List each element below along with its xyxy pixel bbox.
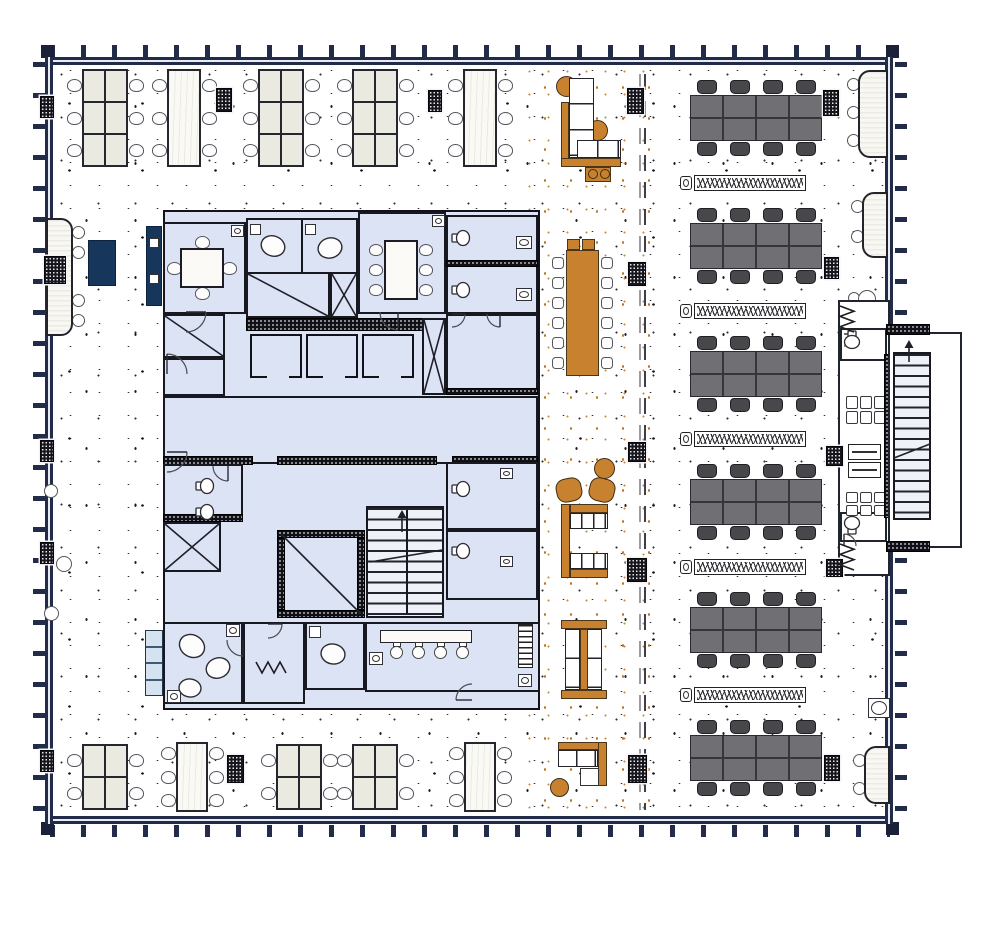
sofa-back <box>561 102 569 166</box>
booth-seats <box>846 492 886 516</box>
elevator-door <box>267 375 289 382</box>
task-chair <box>448 79 463 92</box>
task-chair <box>243 79 258 92</box>
bench-chair <box>730 526 750 540</box>
elevator-wall <box>246 318 434 331</box>
bench-desk-row <box>690 479 822 525</box>
dining-chair <box>552 277 564 289</box>
sink <box>369 652 383 665</box>
bench-chair <box>763 80 783 94</box>
window-bar-counter <box>858 70 888 158</box>
column <box>826 559 843 577</box>
bench-chair <box>697 720 717 734</box>
bench-chair <box>730 654 750 668</box>
task-chair <box>261 787 276 800</box>
task-chair <box>399 79 414 92</box>
utility-wall <box>446 388 538 395</box>
desk-cluster-4 <box>82 744 128 810</box>
task-chair <box>337 79 352 92</box>
dining-chair <box>552 257 564 269</box>
exterior-stair <box>893 352 931 520</box>
bench-chair <box>796 208 816 222</box>
sofa-back <box>561 158 621 167</box>
sink <box>500 468 513 479</box>
long-table <box>463 69 497 167</box>
column <box>628 755 647 783</box>
desk-cluster-4 <box>352 744 398 810</box>
side-table <box>432 215 445 227</box>
exterior-wall-bottom <box>45 816 893 824</box>
elevator-lobby <box>163 396 538 464</box>
stool <box>72 314 85 327</box>
planter-credenza <box>694 559 806 575</box>
side-table <box>167 690 181 703</box>
column <box>40 96 54 118</box>
long-table <box>176 742 208 812</box>
column <box>824 257 839 279</box>
bar-stool <box>456 646 469 659</box>
stool <box>567 239 580 250</box>
column <box>40 750 54 772</box>
meeting-table <box>384 240 418 300</box>
shaft <box>330 272 358 318</box>
pouf <box>44 484 58 498</box>
task-chair <box>337 112 352 125</box>
side-table <box>226 624 240 637</box>
dining-chair <box>601 257 613 269</box>
planter-credenza <box>694 431 806 447</box>
dining-chair <box>601 337 613 349</box>
chair <box>195 287 210 300</box>
bench-chair <box>697 270 717 284</box>
dining-chair <box>601 297 613 309</box>
task-chair <box>449 771 464 784</box>
mech-wall <box>357 538 365 610</box>
bench-chair <box>796 782 816 796</box>
column <box>823 90 839 116</box>
mech-wall <box>277 530 365 538</box>
side-table <box>305 224 316 235</box>
bench-chair <box>730 208 750 222</box>
long-table <box>464 742 496 812</box>
bench-chair <box>796 526 816 540</box>
bar-stool <box>434 646 447 659</box>
bench-chair <box>763 720 783 734</box>
cafe-long-table <box>566 250 599 376</box>
bench-chair <box>796 720 816 734</box>
restroom-divider <box>446 260 538 267</box>
sofa-back <box>561 504 570 578</box>
bench-chair <box>796 592 816 606</box>
appliance <box>848 462 881 478</box>
bench-desk-row <box>690 607 822 653</box>
task-chair <box>449 794 464 807</box>
bar-stool <box>390 646 403 659</box>
bench-chair <box>796 654 816 668</box>
desk-cluster-4 <box>276 744 322 810</box>
vanity-sink <box>516 288 532 301</box>
bench-chair <box>763 592 783 606</box>
dining-chair <box>552 317 564 329</box>
media-niche <box>149 274 159 284</box>
sofa-back <box>570 569 608 578</box>
bench-chair <box>796 142 816 156</box>
bench-chair <box>763 464 783 478</box>
bench-chair <box>697 142 717 156</box>
bench-chair <box>730 142 750 156</box>
column <box>826 446 843 466</box>
bench-chair <box>796 398 816 412</box>
task-chair <box>419 264 433 276</box>
column <box>628 442 646 462</box>
dining-chair <box>552 337 564 349</box>
task-chair <box>67 144 82 157</box>
task-chair <box>305 79 320 92</box>
sofa-seats <box>558 750 598 767</box>
task-chair <box>323 754 338 767</box>
booth-bench <box>561 690 607 699</box>
shaft <box>163 522 221 572</box>
column <box>627 88 644 114</box>
column <box>627 558 647 582</box>
task-chair <box>152 112 167 125</box>
planter-pot <box>680 688 692 702</box>
bench-chair <box>697 80 717 94</box>
pouf <box>550 778 569 797</box>
appliance <box>848 444 881 460</box>
task-chair <box>497 747 512 760</box>
vanity-sink <box>516 236 532 249</box>
utility-room <box>446 314 538 395</box>
task-chair <box>497 794 512 807</box>
sofa-back <box>598 742 607 786</box>
task-chair <box>243 112 258 125</box>
column <box>216 88 232 112</box>
media-niche <box>149 238 159 248</box>
exterior-wall-top <box>45 57 893 65</box>
bench-chair <box>763 782 783 796</box>
task-chair <box>161 747 176 760</box>
wc-closet <box>840 328 887 361</box>
vestibule <box>243 622 305 704</box>
task-chair <box>209 794 224 807</box>
stair-pier <box>886 324 930 335</box>
side-table <box>309 626 321 638</box>
task-chair <box>67 787 82 800</box>
bench-chair <box>763 270 783 284</box>
bench-desk-row <box>690 735 822 781</box>
bench-chair <box>730 464 750 478</box>
meeting-table <box>180 248 224 288</box>
pouf <box>588 169 598 179</box>
elevator-door <box>379 375 401 382</box>
bench-chair <box>763 398 783 412</box>
task-chair <box>419 284 433 296</box>
side-table <box>250 224 261 235</box>
bench-chair <box>796 336 816 350</box>
pouf <box>600 169 610 179</box>
sofa-seats <box>570 553 608 569</box>
column <box>428 90 442 112</box>
task-chair <box>497 771 512 784</box>
booth-seats <box>846 396 886 424</box>
task-chair <box>399 144 414 157</box>
bench-chair <box>697 464 717 478</box>
bench-chair <box>763 142 783 156</box>
task-chair <box>67 112 82 125</box>
window-bar-counter <box>864 746 890 804</box>
elevator <box>306 334 358 378</box>
dining-chair <box>601 357 613 369</box>
bench-desk-row <box>690 95 822 141</box>
bench-chair <box>763 208 783 222</box>
task-chair <box>399 754 414 767</box>
task-chair <box>498 112 513 125</box>
grid-ticks-top <box>50 45 890 57</box>
bench-chair <box>697 336 717 350</box>
bench-chair <box>730 592 750 606</box>
bench-chair <box>697 208 717 222</box>
task-chair <box>67 79 82 92</box>
task-chair <box>67 754 82 767</box>
chair <box>222 262 237 275</box>
wc-closet <box>840 512 887 542</box>
shaft <box>422 318 446 395</box>
restroom <box>446 530 538 600</box>
column <box>40 542 54 564</box>
column <box>227 755 244 783</box>
task-chair <box>337 787 352 800</box>
task-chair <box>305 144 320 157</box>
task-chair <box>337 144 352 157</box>
task-chair <box>261 754 276 767</box>
storage <box>246 272 330 318</box>
task-chair <box>209 747 224 760</box>
task-chair <box>209 771 224 784</box>
dining-chair <box>552 297 564 309</box>
task-chair <box>419 244 433 256</box>
bench-chair <box>730 336 750 350</box>
task-chair <box>202 112 217 125</box>
coffee-table <box>594 458 615 479</box>
task-chair <box>369 284 383 296</box>
task-chair <box>498 79 513 92</box>
bench-desk-row <box>690 223 822 269</box>
planter-pot <box>680 560 692 574</box>
bench-chair <box>763 336 783 350</box>
task-chair <box>498 144 513 157</box>
bench-chair <box>697 592 717 606</box>
pouf <box>56 556 72 572</box>
task-chair <box>399 112 414 125</box>
planter-credenza <box>694 687 806 703</box>
bar-stool <box>412 646 425 659</box>
mech-room <box>277 530 365 618</box>
mech-wall <box>277 538 285 610</box>
sofa-seats <box>577 140 621 158</box>
task-chair <box>129 144 144 157</box>
task-chair <box>129 112 144 125</box>
task-chair <box>449 747 464 760</box>
task-chair <box>202 79 217 92</box>
bench-chair <box>730 398 750 412</box>
stair-pier <box>886 541 930 552</box>
bench-chair <box>730 80 750 94</box>
stool <box>72 294 85 307</box>
task-chair <box>305 112 320 125</box>
task-chair <box>369 244 383 256</box>
column <box>40 440 54 462</box>
side-table <box>868 698 890 718</box>
grid-ticks-bottom <box>50 825 890 837</box>
booth-table <box>580 629 588 690</box>
bench-chair <box>763 526 783 540</box>
stair-divider <box>406 510 408 614</box>
core-wall <box>163 514 243 522</box>
task-chair <box>448 144 463 157</box>
task-chair <box>399 787 414 800</box>
sofa-seats <box>570 513 608 529</box>
column <box>44 256 66 284</box>
window-bar-counter <box>862 192 888 258</box>
planter-credenza <box>694 175 806 191</box>
mech-wall <box>277 610 365 618</box>
task-chair <box>323 787 338 800</box>
desk-cluster-6 <box>352 69 398 167</box>
task-chair <box>202 144 217 157</box>
elevator <box>362 334 414 378</box>
planter-pot <box>680 176 692 190</box>
closet <box>163 358 225 396</box>
desk-cluster-6 <box>258 69 304 167</box>
bench-chair <box>697 654 717 668</box>
task-chair <box>152 144 167 157</box>
bench-chair <box>730 782 750 796</box>
elevator <box>250 334 302 378</box>
bench-chair <box>796 464 816 478</box>
task-chair <box>129 79 144 92</box>
locker-bank <box>145 630 163 696</box>
closet <box>163 314 225 358</box>
sink <box>500 556 513 567</box>
task-chair <box>152 79 167 92</box>
task-chair <box>243 144 258 157</box>
bench-chair <box>697 398 717 412</box>
bench-chair <box>730 270 750 284</box>
dining-chair <box>552 357 564 369</box>
task-chair <box>448 112 463 125</box>
booth-seats <box>587 629 602 690</box>
sink <box>518 674 532 687</box>
booth-seats <box>565 629 580 690</box>
sofa-corner <box>580 768 599 786</box>
elevator-door <box>323 375 345 382</box>
stool <box>582 239 595 250</box>
stool <box>72 226 85 239</box>
column <box>824 755 840 781</box>
task-chair <box>161 771 176 784</box>
navy-bench <box>88 240 116 286</box>
restroom <box>446 462 538 530</box>
booth-bench <box>561 620 607 629</box>
task-chair <box>161 794 176 807</box>
long-table <box>167 69 201 167</box>
column <box>628 262 646 286</box>
bench-desk-row <box>690 351 822 397</box>
task-chair <box>129 754 144 767</box>
dining-chair <box>601 317 613 329</box>
bench-chair <box>763 654 783 668</box>
sofa-back <box>570 504 608 513</box>
planter-pot <box>680 432 692 446</box>
bench-chair <box>697 526 717 540</box>
task-chair <box>129 787 144 800</box>
stool <box>72 246 85 259</box>
task-chair <box>369 264 383 276</box>
radiator <box>518 624 533 668</box>
desk-cluster-6 <box>82 69 128 167</box>
bench-chair <box>796 80 816 94</box>
bench-chair <box>697 782 717 796</box>
core-wall <box>277 456 437 465</box>
floor-plan <box>0 0 1000 931</box>
core-stair <box>366 506 444 618</box>
bench-chair <box>730 720 750 734</box>
side-table <box>231 225 244 237</box>
planter-pot <box>680 304 692 318</box>
pouf <box>44 606 59 621</box>
dining-chair <box>601 277 613 289</box>
planter-credenza <box>694 303 806 319</box>
bench-chair <box>796 270 816 284</box>
task-chair <box>337 754 352 767</box>
